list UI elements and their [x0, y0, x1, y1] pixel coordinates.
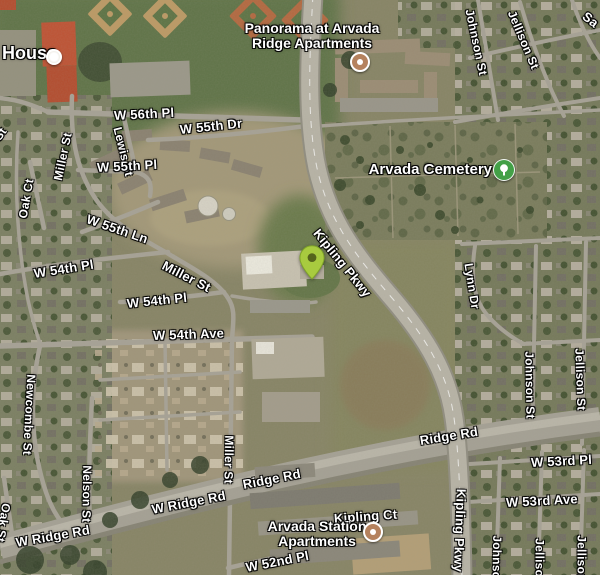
street-label-jellison-st-mid: Jellison St: [573, 348, 588, 411]
poi-marker-station[interactable]: [363, 522, 383, 542]
map-pin[interactable]: [299, 245, 325, 280]
street-label-w-54th-ave: W 54th Ave: [153, 327, 225, 343]
poi-label-panorama-line2: Ridge Apartments: [232, 36, 392, 51]
poi-marker-cemetery[interactable]: [493, 159, 515, 181]
poi-marker-panorama[interactable]: [350, 52, 370, 72]
poi-marker-house[interactable]: [46, 49, 62, 65]
street-label-jellison-st-south: Jellison St: [533, 538, 546, 575]
street-label-nelson-st: Nelson St: [80, 465, 94, 522]
poi-label-panorama-line1: Panorama at Arvada: [232, 21, 392, 36]
street-label-w-55th-pl: W 55th Pl: [97, 158, 158, 175]
street-label-kipling-pkwy-south: Kipling Pkwy: [451, 489, 468, 573]
street-label-w-56th-pl: W 56th Pl: [114, 106, 175, 123]
street-label-w-53rd-pl: W 53rd Pl: [531, 453, 593, 470]
street-label-johnson-st-south: Johnson St: [490, 535, 504, 575]
street-label-johnson-st-mid: Johnson St: [523, 351, 537, 419]
street-label-miller-st-south: Miller St: [222, 435, 235, 484]
poi-label-panorama[interactable]: Panorama at Arvada Ridge Apartments: [232, 21, 392, 51]
tree-icon: [498, 164, 510, 177]
street-label-jellison-st-southeast: Jellison St: [575, 535, 588, 575]
pin-center-dot: [308, 253, 317, 262]
poi-label-cemetery[interactable]: Arvada Cemetery: [358, 162, 492, 177]
satellite-map[interactable]: W 56th Pl Miller St Lewis St W 55th Dr W…: [0, 0, 600, 575]
